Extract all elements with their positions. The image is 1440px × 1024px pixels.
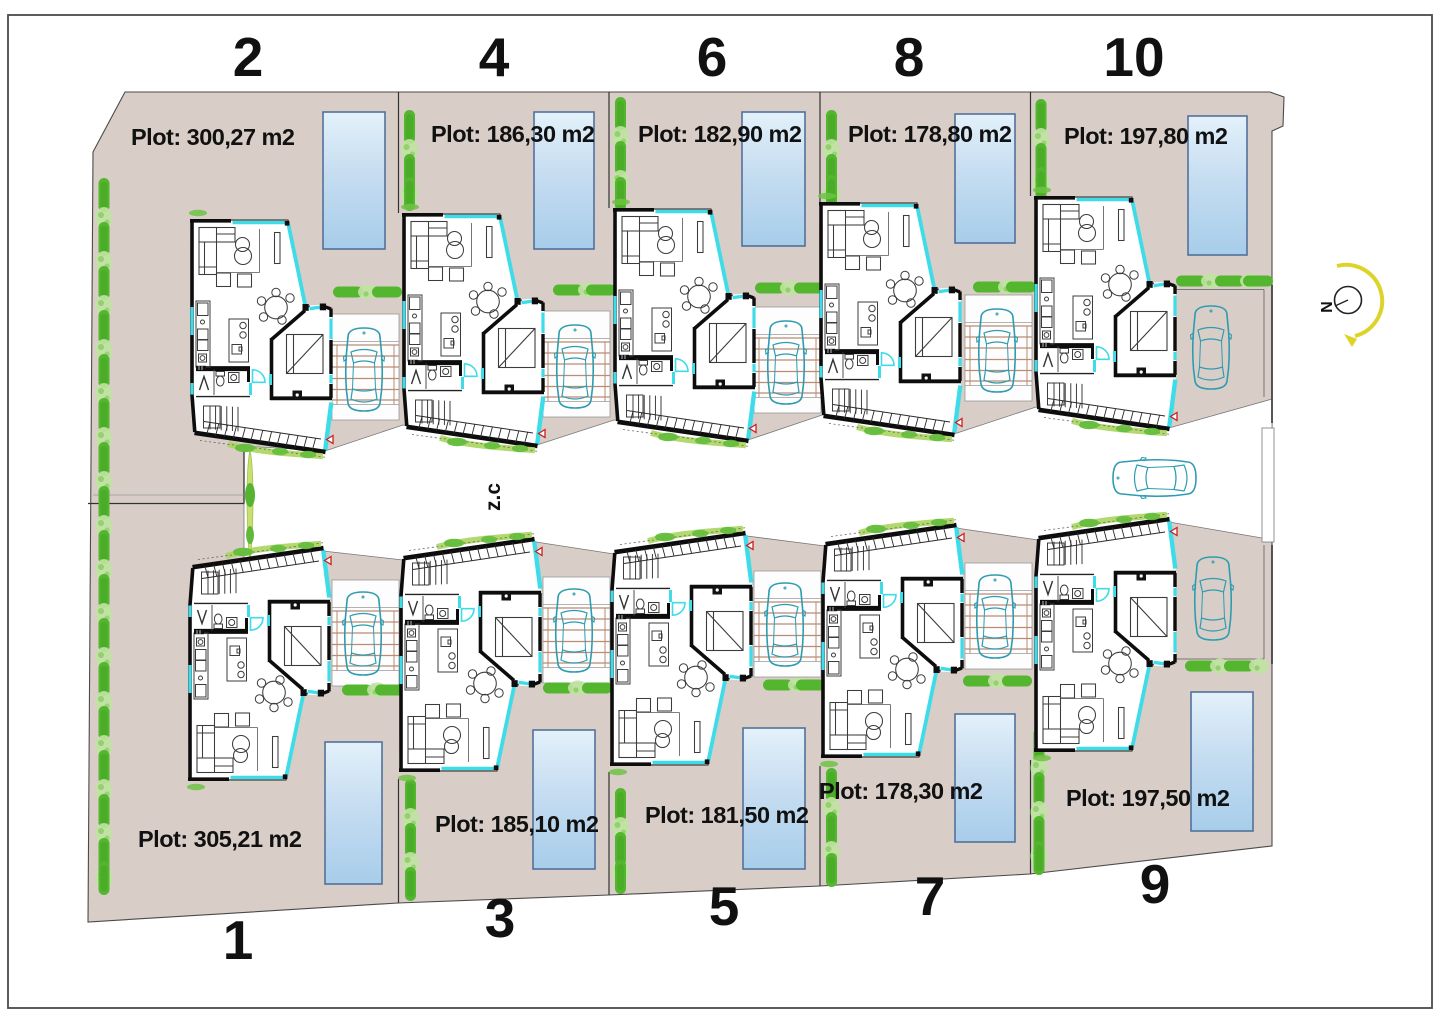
svg-text:7: 7	[915, 865, 946, 927]
svg-text:1: 1	[223, 909, 254, 971]
svg-text:Plot: 182,90 m2: Plot: 182,90 m2	[638, 121, 802, 147]
svg-text:3: 3	[485, 887, 516, 949]
svg-text:Plot: 181,50 m2: Plot: 181,50 m2	[645, 802, 809, 828]
svg-text:8: 8	[894, 26, 925, 88]
svg-text:z.c: z.c	[482, 483, 505, 511]
svg-text:9: 9	[1140, 853, 1171, 915]
svg-text:Plot: 178,30 m2: Plot: 178,30 m2	[819, 778, 983, 804]
svg-text:Plot: 300,27 m2: Plot: 300,27 m2	[131, 124, 295, 150]
svg-text:Plot: 305,21 m2: Plot: 305,21 m2	[138, 826, 302, 852]
svg-text:10: 10	[1103, 26, 1164, 88]
svg-text:Plot: 197,80 m2: Plot: 197,80 m2	[1064, 123, 1228, 149]
svg-text:Plot: 186,30 m2: Plot: 186,30 m2	[431, 121, 595, 147]
svg-text:N: N	[1317, 301, 1334, 313]
svg-text:6: 6	[697, 26, 728, 88]
svg-text:2: 2	[233, 26, 264, 88]
svg-text:Plot: 185,10 m2: Plot: 185,10 m2	[435, 811, 599, 837]
svg-text:Plot: 197,50 m2: Plot: 197,50 m2	[1066, 785, 1230, 811]
svg-text:4: 4	[479, 26, 510, 88]
svg-text:5: 5	[709, 875, 740, 937]
svg-text:Plot: 178,80 m2: Plot: 178,80 m2	[848, 121, 1012, 147]
